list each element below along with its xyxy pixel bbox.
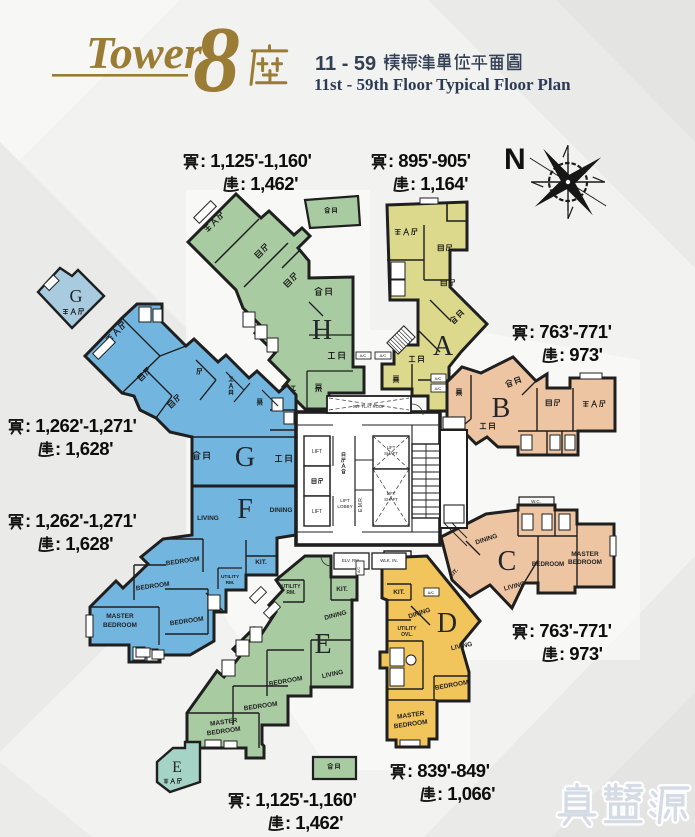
svg-text:A/C: A/C xyxy=(428,590,435,595)
svg-text:: 763'-771': : 763'-771' xyxy=(529,321,612,342)
svg-text:: 973': : 973' xyxy=(559,643,603,664)
svg-text:: 1,462': : 1,462' xyxy=(285,812,343,833)
svg-text:: 1,462': : 1,462' xyxy=(240,173,298,194)
svg-text:: 1,066': : 1,066' xyxy=(437,783,495,804)
svg-text:A/C: A/C xyxy=(360,353,367,358)
svg-text:: 1,125'-1,160': : 1,125'-1,160' xyxy=(200,150,311,171)
svg-text:E: E xyxy=(172,759,182,776)
svg-text:LIFT: LIFT xyxy=(340,498,350,503)
svg-text:Tower: Tower xyxy=(86,27,203,78)
svg-text:: 973': : 973' xyxy=(559,344,603,365)
svg-text:: 1,125'-1,160': : 1,125'-1,160' xyxy=(245,789,356,810)
svg-text:LIFT: LIFT xyxy=(387,445,396,450)
svg-text:C: C xyxy=(498,546,517,577)
svg-text:LIFT: LIFT xyxy=(387,491,396,496)
svg-text:RM.: RM. xyxy=(286,590,296,596)
svg-text:11 - 59: 11 - 59 xyxy=(315,53,376,75)
svg-text:M/F FLAT ROOF: M/F FLAT ROOF xyxy=(353,404,385,409)
svg-text:LIFT: LIFT xyxy=(312,509,322,515)
svg-text:A/C: A/C xyxy=(435,386,442,391)
svg-text:: 1,164': : 1,164' xyxy=(410,173,468,194)
svg-text:KIT.: KIT. xyxy=(336,586,348,593)
svg-text:KIT.: KIT. xyxy=(393,589,405,596)
svg-text:DINING: DINING xyxy=(270,507,293,514)
svg-text:G: G xyxy=(70,286,83,306)
svg-text:F: F xyxy=(237,494,253,525)
svg-text:UTILITY: UTILITY xyxy=(221,574,240,580)
svg-text:: 1,628': : 1,628' xyxy=(55,438,113,459)
svg-text:11st - 59th Floor Typical Floo: 11st - 59th Floor Typical Floor Plan xyxy=(314,75,571,94)
svg-text:: 1,628': : 1,628' xyxy=(55,533,113,554)
svg-text:RM.: RM. xyxy=(226,580,235,586)
svg-text:BEDROOM: BEDROOM xyxy=(532,561,564,568)
svg-text:OVL.: OVL. xyxy=(401,632,413,638)
svg-text:LIVING: LIVING xyxy=(197,515,219,522)
svg-text:A/C: A/C xyxy=(435,376,442,381)
svg-text:MASTER: MASTER xyxy=(106,613,134,620)
svg-text:SHAFT: SHAFT xyxy=(384,451,398,456)
svg-text:H: H xyxy=(312,315,332,346)
svg-text:LIFT: LIFT xyxy=(312,449,322,455)
svg-text:SHAFT: SHAFT xyxy=(384,497,398,502)
svg-text:BEDROOM: BEDROOM xyxy=(568,559,602,566)
svg-text:A: A xyxy=(433,331,454,362)
svg-text:: 839'-849': : 839'-849' xyxy=(407,760,490,781)
svg-text:B: B xyxy=(492,393,511,424)
svg-text:BEDROOM: BEDROOM xyxy=(103,622,137,629)
svg-text:: 895'-905': : 895'-905' xyxy=(388,150,471,171)
svg-text:WLK. IN.: WLK. IN. xyxy=(380,558,398,563)
svg-text:A/C: A/C xyxy=(357,567,361,574)
svg-text:D: D xyxy=(437,608,457,639)
svg-text:MASTER: MASTER xyxy=(571,551,599,558)
svg-text:W.C.: W.C. xyxy=(531,499,541,504)
svg-text:: 763'-771': : 763'-771' xyxy=(529,620,612,641)
svg-text:8: 8 xyxy=(193,8,240,112)
svg-text:LOBBY: LOBBY xyxy=(337,504,352,509)
svg-text:: 1,262'-1,271': : 1,262'-1,271' xyxy=(25,510,136,531)
svg-text:E.M.R.: E.M.R. xyxy=(358,497,364,512)
svg-text:A/C: A/C xyxy=(380,353,387,358)
svg-text:KIT.: KIT. xyxy=(255,559,267,566)
svg-text:G: G xyxy=(235,442,255,473)
svg-text:: 1,262'-1,271': : 1,262'-1,271' xyxy=(25,415,136,436)
svg-text:N: N xyxy=(504,143,526,176)
svg-text:E: E xyxy=(314,629,331,660)
